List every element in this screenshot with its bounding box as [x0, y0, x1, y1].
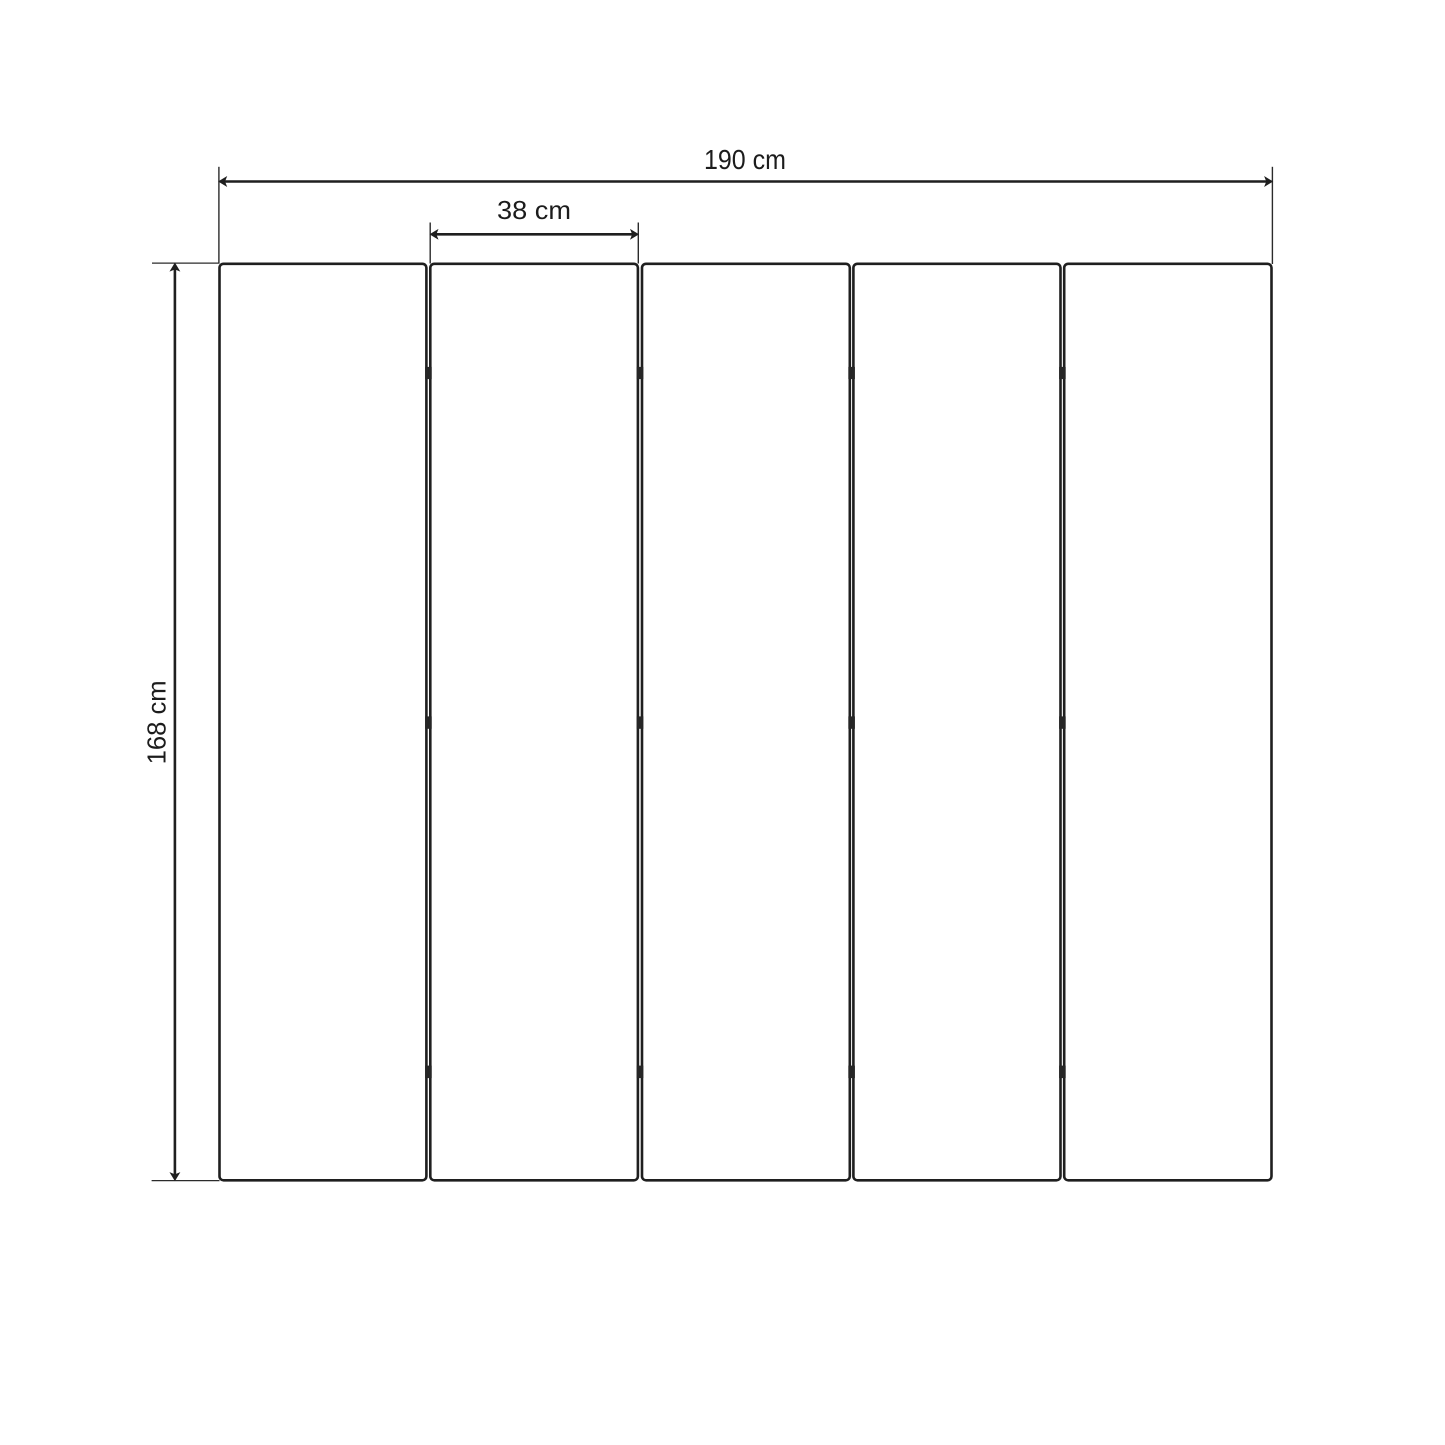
svg-text:168 cm: 168 cm — [143, 680, 171, 764]
svg-text:190 cm: 190 cm — [704, 144, 786, 175]
svg-text:38 cm: 38 cm — [497, 197, 571, 225]
